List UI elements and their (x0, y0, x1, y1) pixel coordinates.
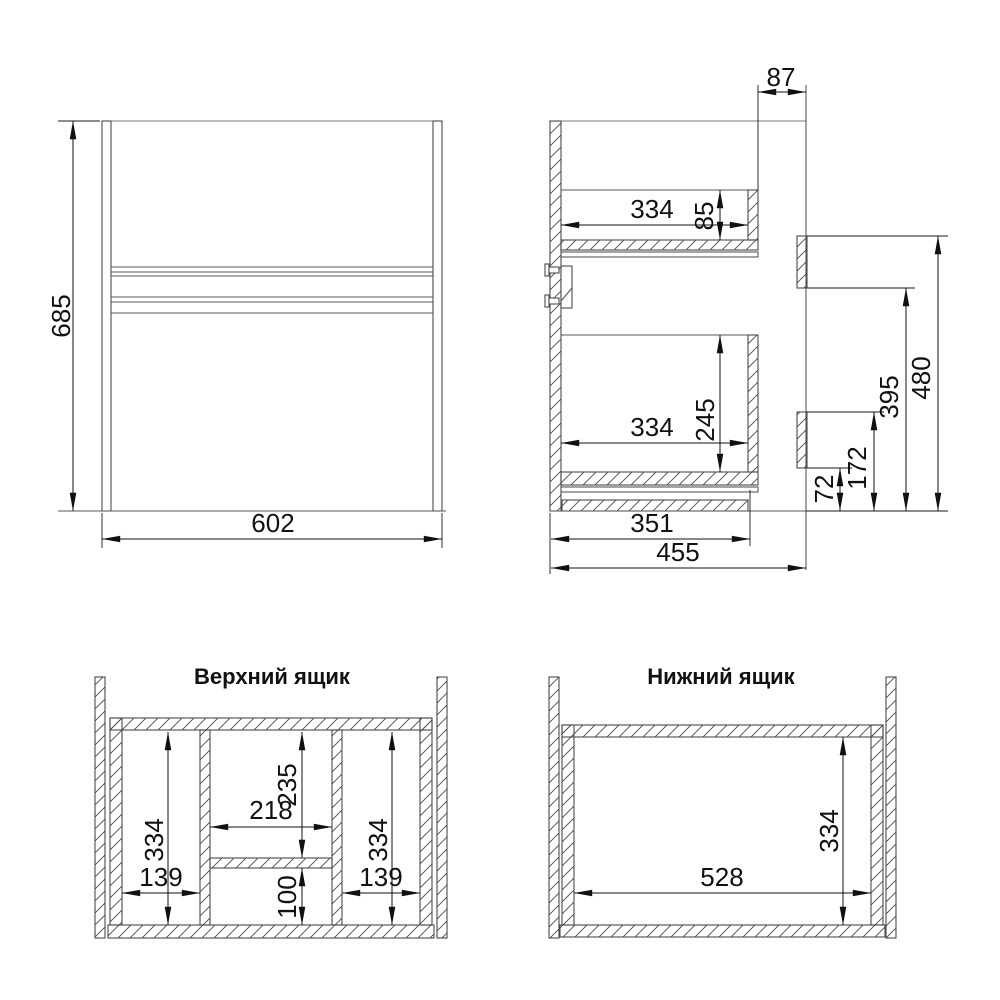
drawer-left-wall (110, 718, 122, 925)
side-view-geometry (545, 85, 807, 570)
dim-bracket-low-bottom: 72 (809, 475, 839, 504)
dim-middle-front-depth: 100 (272, 875, 302, 918)
upper-drawer-dimensions: 334 139 235 218 100 334 139 (122, 732, 420, 925)
dim-inner-width: 528 (700, 862, 743, 892)
dim-total-depth: 455 (656, 537, 699, 567)
lower-drawer-bottom (561, 472, 758, 485)
dim-upper-back-height: 85 (689, 202, 719, 231)
drawer-right-wall (871, 725, 883, 925)
drawer-front-panel (108, 925, 434, 938)
dim-bracket-up-top: 480 (906, 356, 936, 399)
cabinet-left-panel (549, 677, 559, 938)
front-left-side-panel (102, 121, 111, 511)
dim-left-width: 139 (139, 862, 182, 892)
drawer-middle-divider (210, 858, 332, 868)
side-view-dimensions: 87 334 85 334 245 351 455 72 (550, 62, 948, 574)
technical-drawing-page: 685 602 (0, 0, 1000, 1000)
drawer-right-wall (420, 718, 432, 925)
dim-back-gap: 87 (767, 62, 796, 92)
dim-lower-drawer-depth: 334 (630, 412, 673, 442)
lower-drawer-title: Нижний ящик (647, 664, 795, 689)
upper-drawer-back-wall (748, 190, 758, 240)
drawer-back-wall (562, 725, 883, 737)
upper-drawer-rail (561, 252, 758, 257)
lower-drawer-back-wall (748, 335, 758, 472)
dim-inner-depth: 334 (814, 809, 844, 852)
upper-drawer-title: Верхний ящик (194, 664, 351, 689)
lower-drawer-dimensions: 528 334 (574, 737, 871, 925)
front-right-side-panel (433, 121, 442, 511)
dim-front-height: 685 (46, 294, 76, 337)
dim-right-depth: 334 (363, 818, 393, 861)
lower-wall-bracket (797, 412, 807, 468)
dim-right-width: 139 (359, 862, 402, 892)
drawer-front-panel (560, 925, 885, 937)
dim-upper-drawer-depth: 334 (630, 194, 673, 224)
front-view: 685 602 (46, 121, 446, 548)
lower-drawer-view: Нижний ящик 528 334 (549, 664, 896, 938)
front-view-geometry (58, 121, 446, 511)
lower-drawer-rail (561, 487, 758, 492)
dim-left-depth: 334 (139, 818, 169, 861)
drawer-left-wall (562, 725, 574, 925)
dim-bottom-depth: 351 (630, 508, 673, 538)
cabinet-right-panel (437, 677, 447, 938)
dim-middle-width: 218 (249, 795, 292, 825)
dim-lower-back-height: 245 (690, 398, 720, 441)
drawer-back-wall (110, 718, 432, 730)
lower-drawer-geometry (549, 677, 896, 938)
dim-bracket-up-bottom: 395 (874, 375, 904, 418)
drawer-divider-left (200, 730, 210, 925)
cabinet-right-panel (886, 677, 896, 938)
upper-drawer-bottom (561, 240, 758, 250)
side-view: 87 334 85 334 245 351 455 72 (545, 62, 948, 574)
drawer-divider-right (332, 730, 342, 925)
cabinet-dimension-drawing: 685 602 (0, 0, 1000, 1000)
dim-front-width: 602 (251, 508, 294, 538)
cabinet-left-panel (95, 677, 105, 938)
upper-drawer-view: Верхний ящик 334 139 235 218 100 334 (95, 664, 447, 938)
upper-wall-bracket (797, 236, 807, 288)
dim-bracket-low-top: 172 (842, 446, 872, 489)
side-front-panel (550, 121, 561, 511)
